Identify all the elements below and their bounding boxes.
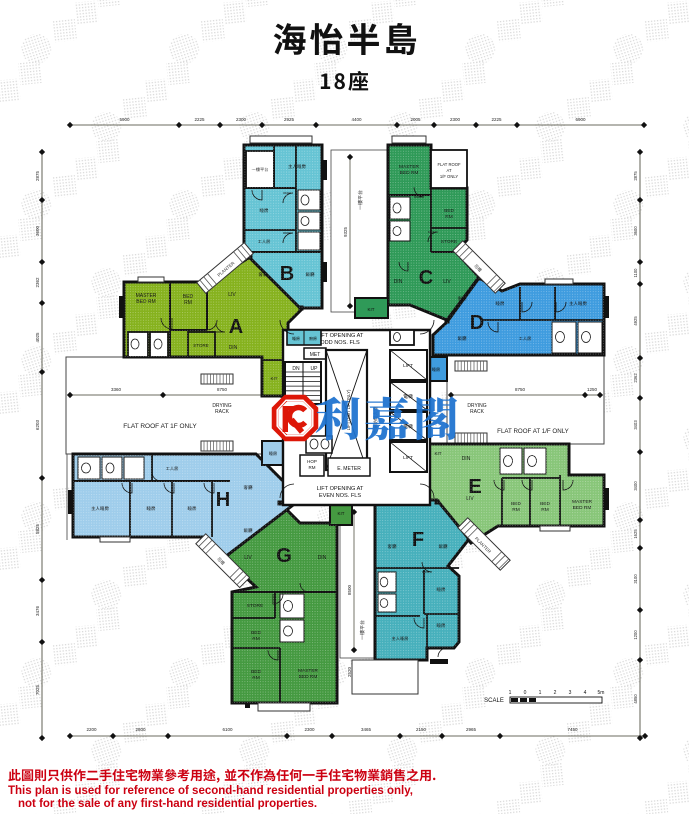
svg-text:5900: 5900 [119, 117, 130, 122]
svg-text:1250: 1250 [587, 387, 598, 392]
svg-text:2520: 2520 [347, 666, 352, 677]
svg-text:LIFT: LIFT [403, 455, 413, 461]
svg-text:5825: 5825 [35, 523, 40, 534]
svg-text:E. METER: E. METER [337, 466, 361, 472]
svg-text:LIFT OPENING AT: LIFT OPENING AT [317, 333, 364, 339]
svg-text:3465: 3465 [361, 727, 372, 732]
svg-text:2005: 2005 [410, 117, 421, 122]
svg-text:LIFT OPENING AT: LIFT OPENING AT [317, 486, 364, 492]
svg-text:FLAT ROOF: FLAT ROOF [437, 162, 461, 167]
svg-text:5m: 5m [598, 690, 605, 696]
svg-text:FLAT ROOF AT 1F ONLY: FLAT ROOF AT 1F ONLY [123, 423, 197, 430]
svg-text:8750: 8750 [217, 387, 228, 392]
svg-text:3600: 3600 [35, 225, 40, 236]
svg-text:RACK: RACK [215, 409, 230, 415]
svg-text:KIT: KIT [337, 511, 344, 516]
svg-text:MET: MET [310, 352, 321, 358]
svg-text:FLAT ROOF AT 1/F ONLY: FLAT ROOF AT 1/F ONLY [497, 428, 569, 435]
svg-text:4: 4 [584, 690, 587, 696]
svg-text:3600: 3600 [633, 226, 638, 236]
svg-text:1: 1 [509, 690, 512, 696]
svg-text:2225: 2225 [491, 117, 502, 122]
svg-text:2225: 2225 [194, 117, 205, 122]
svg-text:2200: 2200 [86, 727, 97, 732]
svg-text:4850: 4850 [633, 694, 638, 704]
svg-text:2875: 2875 [633, 171, 638, 181]
svg-text:2875: 2875 [35, 170, 40, 181]
svg-text:6100: 6100 [222, 727, 233, 732]
svg-text:2800: 2800 [135, 727, 146, 732]
svg-text:7025: 7025 [35, 684, 40, 695]
svg-text:7450: 7450 [567, 727, 578, 732]
svg-text:8750: 8750 [515, 387, 526, 392]
svg-text:4400: 4400 [351, 117, 362, 122]
svg-text:LIFT: LIFT [403, 363, 413, 369]
svg-text:3360: 3360 [111, 387, 122, 392]
svg-text:3476: 3476 [35, 605, 40, 616]
svg-text:6203: 6203 [35, 419, 40, 430]
svg-text:6900: 6900 [575, 117, 586, 122]
svg-text:1/F ONLY: 1/F ONLY [440, 174, 459, 179]
svg-text:not for the sale of any first-: not for the sale of any first-hand resid… [18, 798, 317, 810]
svg-text:2362: 2362 [35, 277, 40, 288]
svg-text:2965: 2965 [466, 727, 477, 732]
svg-text:0: 0 [524, 690, 527, 696]
svg-text:3400: 3400 [633, 481, 638, 491]
svg-text:2150: 2150 [416, 727, 427, 732]
svg-text:8500: 8500 [347, 584, 352, 595]
svg-text:3100: 3100 [633, 574, 638, 584]
svg-text:9325: 9325 [343, 226, 348, 237]
svg-text:RM: RM [309, 465, 316, 470]
svg-text:This plan is used for referenc: This plan is used for reference of secon… [8, 785, 413, 797]
svg-text:2300: 2300 [304, 727, 315, 732]
svg-text:4925: 4925 [633, 316, 638, 326]
svg-text:EVEN NOS. FLS: EVEN NOS. FLS [319, 493, 362, 499]
svg-text:1625: 1625 [633, 529, 638, 539]
svg-text:2362: 2362 [633, 373, 638, 383]
svg-text:3: 3 [569, 690, 572, 696]
svg-text:ODD NOS. FLS: ODD NOS. FLS [320, 340, 360, 346]
svg-text:2300: 2300 [450, 117, 461, 122]
svg-text:AT: AT [446, 168, 451, 173]
svg-text:1200: 1200 [633, 630, 638, 640]
svg-text:KIT: KIT [367, 307, 374, 312]
svg-text:UP: UP [311, 366, 319, 372]
svg-text:2300: 2300 [236, 117, 247, 122]
svg-text:4025: 4025 [35, 332, 40, 343]
svg-text:SCALE: SCALE [484, 698, 504, 704]
svg-text:1: 1 [539, 690, 542, 696]
svg-text:RACK: RACK [470, 409, 485, 415]
svg-text:2925: 2925 [284, 117, 295, 122]
svg-text:3403: 3403 [633, 420, 638, 430]
svg-text:1100: 1100 [633, 268, 638, 278]
svg-text:2: 2 [554, 690, 557, 696]
svg-text:DN: DN [292, 366, 300, 372]
svg-text:HOP: HOP [307, 459, 317, 464]
